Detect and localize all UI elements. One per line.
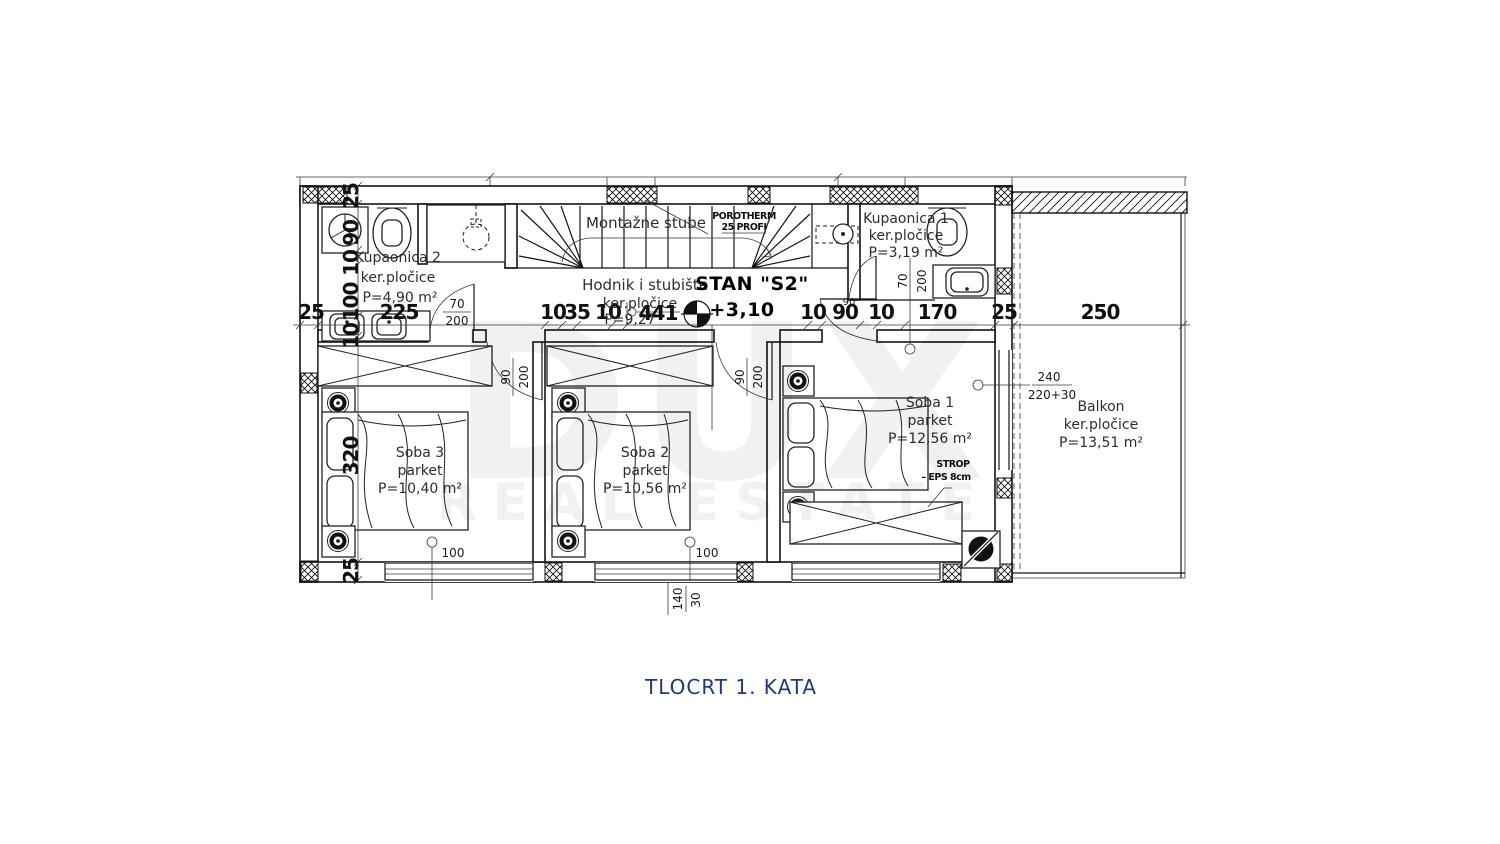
window-soba3 (385, 562, 533, 582)
dim-v-100: 100 (339, 283, 363, 322)
dim-v-25-top: 25 (339, 183, 363, 209)
window-soba1 (792, 562, 940, 582)
watermark: DUX REAL ESTATE (437, 278, 994, 533)
stair-winder-left (519, 206, 583, 268)
balkon-name: Balkon (1077, 399, 1124, 415)
kupaonica1-floor: ker.pločice (869, 228, 943, 244)
balcony-door-height: 220+30 (1028, 388, 1076, 402)
drawing-title: TLOCRT 1. KATA (644, 675, 817, 699)
kupaonica2-area: P=4,90 m² (362, 290, 437, 306)
watermark-line2: REAL ESTATE (437, 473, 992, 533)
floor-drain-icon (962, 531, 1000, 568)
window-b-sill-height: 140 (671, 588, 685, 611)
wall-spec-line1: POROTHERM (712, 211, 776, 222)
dim-h-25-left: 25 (298, 300, 324, 324)
floor-plan-drawing: 25 225 10 35 10 441 10 90 10 170 25 250 … (0, 0, 1500, 844)
dim-h-25-right: 25 (991, 300, 1017, 324)
window-soba2 (595, 562, 737, 582)
window-a-label: 100 (442, 546, 465, 560)
stair-walk-line (562, 238, 771, 262)
window-b-parapet: 30 (689, 592, 703, 607)
balkon-floor: ker.pločice (1064, 417, 1138, 433)
kupaonica1-name: Kupaonica 1 (863, 211, 949, 227)
soba3-name: Soba 3 (396, 445, 444, 461)
balcony-door-width: 240 (1038, 370, 1061, 384)
wall-spec-line2: 25 PROFI (722, 222, 767, 233)
dim-v-25-bottom: 25 (339, 558, 363, 584)
kupaonica1-area: P=3,19 m² (868, 245, 943, 261)
nightstand-lamp-icon (322, 526, 355, 557)
dim-v-320: 320 (339, 437, 363, 476)
kupaonica2-name: Kupaonica 2 (355, 250, 441, 266)
floor-plan-page: 25 225 10 35 10 441 10 90 10 170 25 250 … (0, 0, 1500, 844)
upper-reference-line (296, 173, 1187, 186)
balkon-area: P=13,51 m² (1059, 435, 1143, 451)
window-b-label: 100 (696, 546, 719, 560)
dim-h-250: 250 (1081, 300, 1120, 324)
dim-v-10b: 10 (339, 323, 363, 349)
kupaonica2-floor: ker.pločice (361, 270, 435, 286)
windows (385, 562, 940, 582)
dim-v-90: 90 (339, 220, 363, 246)
